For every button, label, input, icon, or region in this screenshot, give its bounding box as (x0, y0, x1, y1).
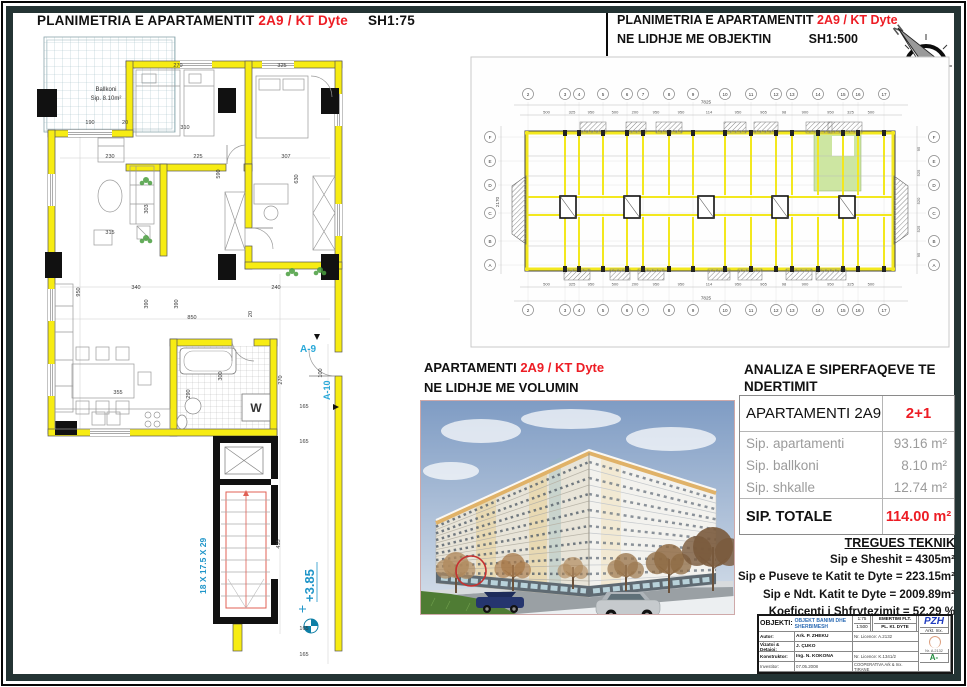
dim-label: 965 (760, 110, 767, 115)
grid-number: 3 (564, 92, 567, 97)
grid-letter: F (933, 135, 936, 140)
grade-mark: A- (920, 654, 949, 663)
grid-letter: B (932, 239, 935, 244)
kitchen-furniture (55, 284, 170, 429)
dim-label: 500 (868, 282, 875, 287)
dim-label: 20 (122, 120, 128, 126)
grid-number: 4 (578, 92, 581, 97)
tregues-line: Sip e Sheshit = 4305m² (650, 552, 955, 569)
table-row: Sip. ballkoni 8.10 m² (740, 454, 954, 476)
table-header-row: APARTAMENTI 2A9 2+1 (740, 396, 954, 432)
grid-letter: B (488, 239, 491, 244)
dim-label: 500 (612, 282, 619, 287)
plan500-subtitle: NE LIDHJE ME OBJEKTIN (617, 32, 771, 46)
dim-label: 307 (281, 154, 290, 160)
section-marker-a10: A-10 (322, 380, 332, 400)
tregues-line: Sip e Puseve te Katit te Dyte = 223.15m² (650, 569, 955, 586)
title-block: OBJEKTI: OBJEKT BANIMI DHE SHERBIMESH 1:… (757, 614, 953, 674)
stamp-circle-icon (929, 636, 941, 648)
dim-label: 98 (782, 110, 787, 115)
dim-label: 225 (193, 154, 202, 160)
dim-label: 165 (299, 652, 308, 658)
dim-total: 2170 (495, 196, 500, 207)
dim-label: 950 (653, 282, 660, 287)
dim-label: 20 (248, 311, 254, 317)
dim-label: 950 (735, 282, 742, 287)
tregues-heading: TREGUES TEKNIK (650, 536, 955, 550)
staircase: 18 X 17.5 X 29 (198, 490, 270, 608)
grid-number: 5 (602, 92, 605, 97)
grid-number: 13 (789, 308, 795, 313)
dim-label: 900 (802, 110, 809, 115)
dim-label: 95 (916, 252, 921, 257)
dim-label: 590 (216, 169, 222, 178)
dim-label: 630 (294, 174, 300, 183)
grid-number: 2 (527, 308, 530, 313)
dim-label: 950 (678, 282, 685, 287)
dim-label: 390 (174, 299, 180, 308)
grid-letter: E (932, 159, 935, 164)
volume-title-unit: 2A9 / KT Dyte (520, 360, 604, 375)
grid-letter: F (489, 135, 492, 140)
balcony-hatch (724, 122, 746, 133)
dim-label: 165 (299, 404, 308, 410)
grid-number: 15 (840, 92, 846, 97)
technical-indicators: TREGUES TEKNIK Sip e Sheshit = 4305m² Si… (650, 536, 955, 621)
dim-label: 325 (569, 282, 576, 287)
grid-number: 12 (773, 92, 779, 97)
dim-label: 200 (632, 110, 639, 115)
dim-label: 950 (678, 110, 685, 115)
dim-label: 98 (782, 282, 787, 287)
door-swings (227, 76, 335, 376)
building-plan-panel: 2233445566778899101011111212131314141515… (470, 56, 950, 348)
dim-label: 303 (144, 204, 150, 213)
dim-label: 190 (85, 120, 94, 126)
dim-label: 325 (569, 110, 576, 115)
analysis-heading: ANALIZA E SIPERFAQEVE TE NDERTIMIT (744, 362, 956, 396)
dim-label: 500 (868, 110, 875, 115)
tregues-line: Sip e Ndt. Katit te Dyte = 2009.89m² (650, 587, 955, 604)
survey-cross-icon (299, 606, 306, 613)
grid-number: 17 (881, 308, 887, 313)
apartment-label: APARTAMENTI 2A9 (740, 405, 882, 422)
title-divider-line (606, 13, 608, 56)
dim-label: 100 (318, 368, 324, 377)
dim-label: 950 (76, 287, 82, 296)
floor-plan-75: Ballkoni Sip. 8.10m² (30, 34, 460, 674)
dim-total: 7825 (701, 296, 712, 301)
dim-label: 325 (847, 110, 854, 115)
dim-label: 525 (916, 225, 921, 232)
building-plan-500: 2233445566778899101011111212131314141515… (470, 56, 950, 348)
dim-label: 290 (186, 389, 192, 398)
dim-label: 520 (916, 197, 921, 204)
dim-label: 950 (735, 110, 742, 115)
pzh-logo: PZH (920, 616, 949, 628)
grid-number: 4 (578, 308, 581, 313)
drawing-sheet: { "colors": { "accent_red": "#ed1c24", "… (0, 0, 967, 687)
grid-number: 6 (626, 308, 629, 313)
balcony-area-label: Sip. 8.10m² (91, 96, 122, 102)
plan75-title-unit: 2A9 / KT Dyte (258, 13, 348, 28)
grid-number: 10 (722, 308, 728, 313)
balcony-label: Ballkoni (95, 87, 116, 93)
dim-total: 7825 (701, 100, 712, 105)
dim-label: 270 (278, 375, 284, 384)
grid-number: 12 (773, 308, 779, 313)
dim-label: 270 (173, 63, 182, 69)
stair-dimensions-note: 18 X 17.5 X 29 (198, 537, 208, 594)
dim-label: 310 (180, 125, 189, 131)
plan500-title: PLANIMETRIA E APARTAMENTIT 2A9 / KT Dyte… (617, 11, 898, 49)
dim-label: 114 (706, 282, 713, 287)
grid-number: 6 (626, 92, 629, 97)
annotations: A-9 A-10 +3.85 (299, 334, 339, 633)
dim-label: 390 (144, 299, 150, 308)
grid-number: 11 (749, 92, 754, 97)
dim-label: 500 (543, 282, 550, 287)
dim-label: 114 (706, 110, 713, 115)
plan75-title-text: PLANIMETRIA E APARTAMENTIT (37, 13, 254, 28)
pzh-logo-cell: PZH Arkt. Inx. Nr. A.2132 A- (919, 616, 951, 672)
table-row: Sip. shkalle 12.74 m² (740, 476, 954, 498)
objekti-cell: OBJEKTI: OBJEKT BANIMI DHE SHERBIMESH (759, 616, 853, 632)
dim-label: 850 (187, 315, 196, 321)
dim-label: 900 (802, 282, 809, 287)
dim-label: 500 (543, 110, 550, 115)
dim-label: 950 (588, 110, 595, 115)
plan500-title-text: PLANIMETRIA E APARTAMENTIT (617, 13, 814, 27)
dim-label: 355 (113, 390, 122, 396)
floor-plan-75-panel: Ballkoni Sip. 8.10m² (30, 34, 460, 674)
dim-label: 95 (916, 146, 921, 151)
area-analysis-table: APARTAMENTI 2A9 2+1 Sip. apartamenti 93.… (739, 395, 955, 535)
plan75-title: PLANIMETRIA E APARTAMENTIT 2A9 / KT Dyte… (37, 13, 415, 28)
dim-label: 950 (653, 110, 660, 115)
highlighted-apartment-2a9 (814, 134, 861, 191)
grid-number: 11 (749, 308, 754, 313)
grid-number: 10 (722, 92, 728, 97)
dim-label: 950 (588, 282, 595, 287)
grid-number: 13 (789, 92, 795, 97)
dim-label: 325 (847, 282, 854, 287)
grid-number: 15 (840, 308, 846, 313)
dim-label: 525 (916, 169, 921, 176)
dim-label: 325 (277, 63, 286, 69)
grid-number: 9 (692, 308, 695, 313)
grid-number: 7 (642, 92, 645, 97)
grid-letter: E (488, 159, 491, 164)
dim-label: 340 (131, 285, 140, 291)
plan75-title-scale: SH1:75 (368, 13, 415, 28)
dim-label: 240 (271, 285, 280, 291)
grid-number: 14 (815, 308, 821, 313)
grid-number: 16 (855, 308, 861, 313)
grid-number: 9 (692, 92, 695, 97)
grid-number: 2 (527, 92, 530, 97)
volume-title: APARTAMENTI 2A9 / KT Dyte NE LIDHJE ME V… (424, 358, 604, 397)
balcony-hatch (786, 269, 812, 280)
emertimi-cell: EMERTIMI FLT. PL. Kt. DYTE (873, 616, 919, 632)
dim-label: 965 (760, 282, 767, 287)
grid-number: 14 (815, 92, 821, 97)
dim-label: 200 (632, 282, 639, 287)
dim-label: 950 (827, 282, 834, 287)
dim-label: 165 (299, 626, 308, 632)
scale-cell: 1:75 1:500 (853, 616, 873, 632)
table-row: Sip. apartamenti 93.16 m² (740, 432, 954, 454)
living-room-furniture (94, 138, 154, 245)
dim-label: 500 (612, 110, 619, 115)
dim-label: 315 (105, 230, 114, 236)
grid-number: 8 (668, 92, 671, 97)
grid-number: 16 (855, 92, 861, 97)
washing-machine-label: W (250, 401, 262, 415)
balcony: Ballkoni Sip. 8.10m² (44, 37, 175, 132)
grid-number: 17 (881, 92, 887, 97)
volume-title-text: APARTAMENTI (424, 360, 517, 375)
level-label: +3.85 (302, 569, 317, 602)
grid-number: 8 (668, 308, 671, 313)
volume-subtitle: NE LIDHJE ME VOLUMIN (424, 378, 604, 398)
table-total-row: SIP. TOTALE 114.00 m² (740, 498, 954, 534)
objekti-value: OBJEKT BANIMI DHE SHERBIMESH (795, 618, 851, 630)
grid-number: 5 (602, 308, 605, 313)
dim-label: 300 (218, 371, 224, 380)
section-marker-a9: A-9 (300, 344, 317, 355)
dim-label: 165 (299, 439, 308, 445)
grid-number: 3 (564, 308, 567, 313)
table-body: Sip. apartamenti 93.16 m² Sip. ballkoni … (740, 432, 954, 498)
apartment-type: 2+1 (882, 396, 954, 431)
grid-number: 7 (642, 308, 645, 313)
dim-label: 230 (105, 154, 114, 160)
dim-label: 435 (276, 539, 282, 548)
bathroom: W (177, 346, 270, 429)
dim-label: 950 (827, 110, 834, 115)
plan500-scale: SH1:500 (809, 32, 858, 46)
